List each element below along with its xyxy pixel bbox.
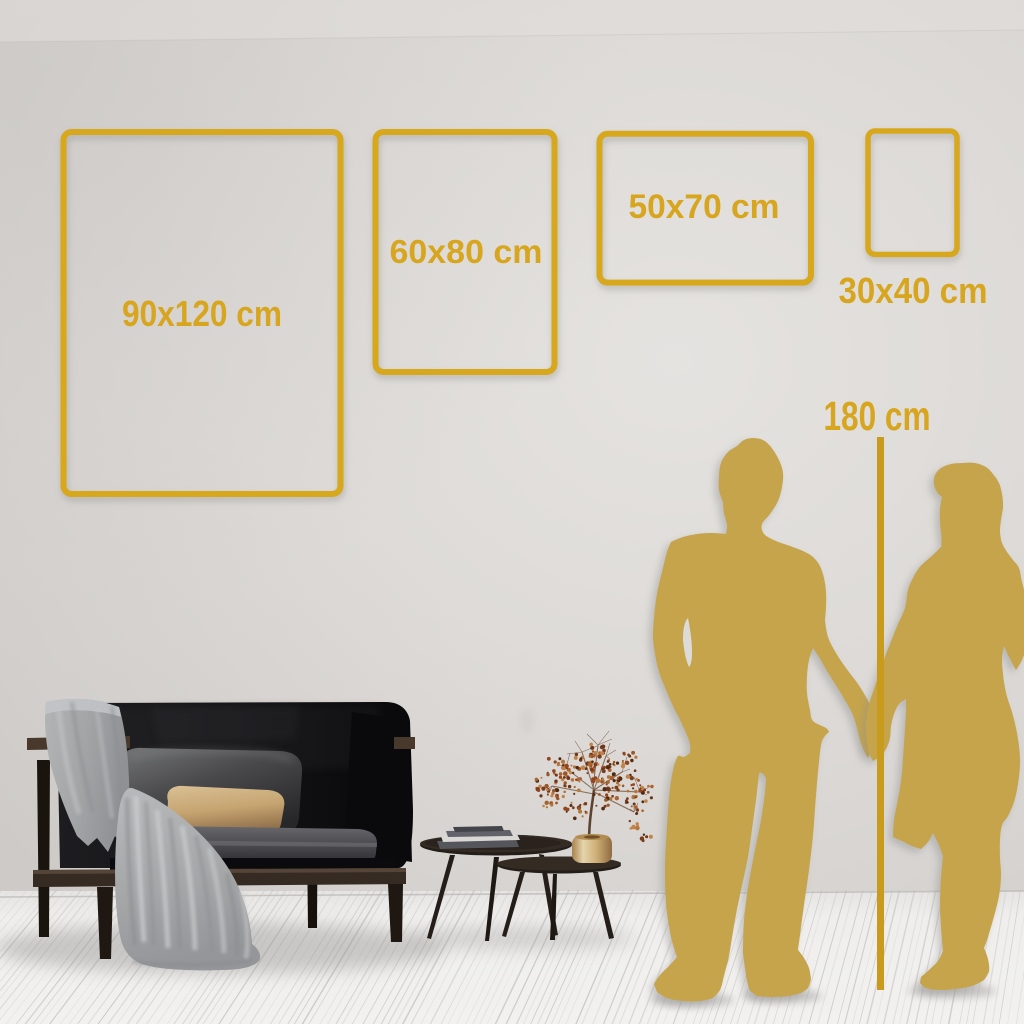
svg-text:90x120 cm: 90x120 cm: [122, 293, 282, 334]
svg-text:60x80 cm: 60x80 cm: [390, 233, 543, 270]
svg-text:50x70 cm: 50x70 cm: [629, 188, 780, 226]
svg-text:180 cm: 180 cm: [824, 393, 931, 439]
svg-text:30x40 cm: 30x40 cm: [839, 270, 988, 311]
